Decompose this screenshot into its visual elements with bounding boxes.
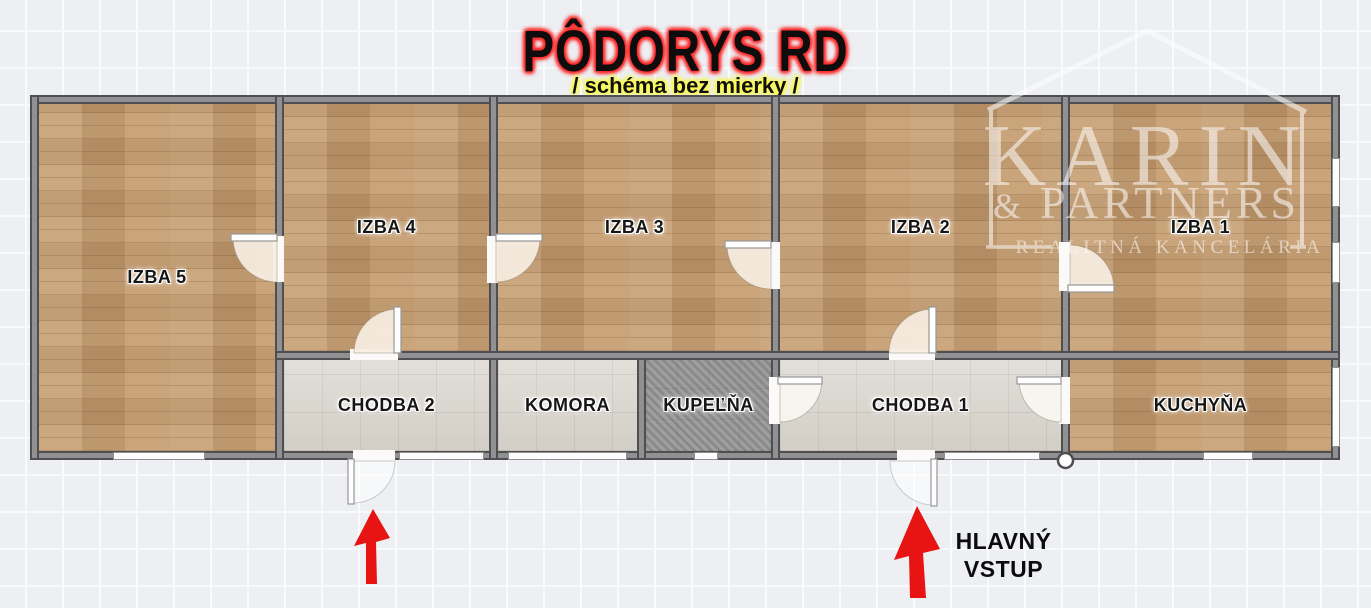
wall-joint-marker <box>1058 453 1073 468</box>
entrance-arrow-secondary <box>354 509 390 584</box>
watermark-partners: PARTNERS <box>1040 177 1300 228</box>
door-izba3-izba2 <box>727 245 771 289</box>
door-izba5-izba4 <box>233 238 277 282</box>
main-entrance-line1: HLAVNÝ <box>926 527 1081 555</box>
watermark-logo: KARIN & PARTNERS REALITNÁ KANCELÁRIA <box>983 31 1325 258</box>
watermark-roof-outline <box>988 31 1306 112</box>
door-exterior-chodba2 <box>353 461 395 503</box>
door-exterior-main <box>890 461 934 505</box>
watermark-ampersand: & <box>993 186 1021 226</box>
door-kupelna-chodba1 <box>780 380 822 422</box>
main-entrance-line2: VSTUP <box>926 555 1081 583</box>
door-chodba1-kuchyna <box>1019 380 1061 422</box>
watermark-tagline: REALITNÁ KANCELÁRIA <box>1016 236 1325 258</box>
door-izba4-chodba2 <box>354 309 398 353</box>
main-entrance-label: HLAVNÝ VSTUP <box>926 527 1081 583</box>
floorplan-canvas: PÔDORYS RD / schéma bez mierky / IZBA 5 … <box>0 0 1371 608</box>
door-izba2-chodba1 <box>889 309 933 353</box>
door-izba4-izba3 <box>496 238 540 282</box>
plan-overlay: KARIN & PARTNERS REALITNÁ KANCELÁRIA <box>0 0 1371 608</box>
